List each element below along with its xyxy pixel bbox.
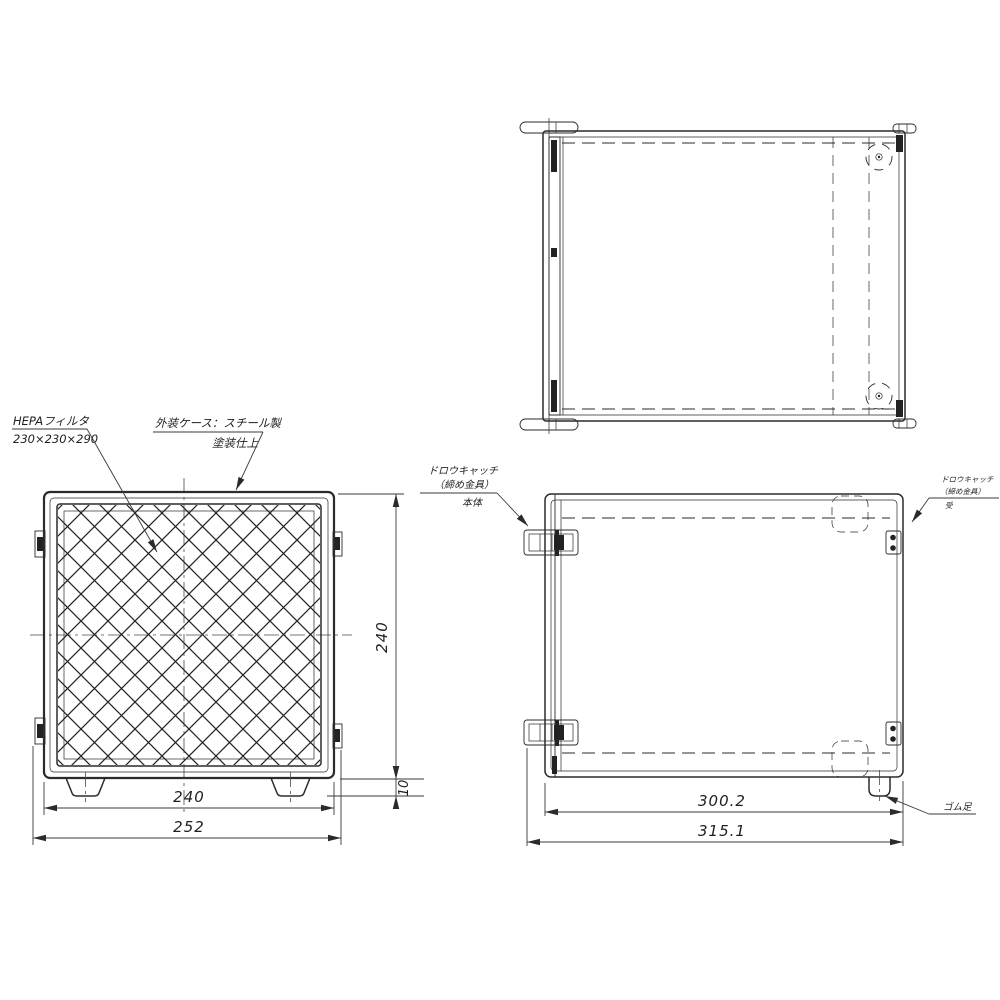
dim-foot-height: 10: [397, 780, 412, 797]
outer-case-finish: 塗装仕上: [212, 436, 258, 450]
technical-drawing: 240 252 240 10 300.2 315.1 HEPAフィルタ 230×…: [0, 0, 1000, 1000]
side-view: [524, 494, 903, 801]
draw-catch-body-line2: （締め金具）: [434, 479, 494, 491]
hidden-foot-mount-bottom: [832, 741, 868, 777]
draw-catch-body-line1: ドロウキャッチ: [428, 465, 499, 477]
hepa-filter-name: HEPAフィルタ: [13, 414, 89, 428]
filter-mesh: [58, 505, 320, 765]
draw-catch-receiver-line1: ドロウキャッチ: [941, 475, 994, 484]
catch-receiver-upper: [886, 531, 901, 554]
case-outline-side: [545, 494, 903, 777]
dim-front-body-width: 240: [173, 788, 205, 806]
label-draw-catch-body: ドロウキャッチ （締め金具） 本体: [420, 465, 528, 526]
case-outline-top: [543, 131, 905, 421]
front-view: [30, 478, 352, 812]
drawing-sheet: 240 252 240 10 300.2 315.1 HEPAフィルタ 230×…: [0, 0, 1000, 1000]
top-view: [520, 118, 916, 434]
label-outer-case: 外装ケース：スチール製 塗装仕上: [153, 416, 282, 490]
dim-front-overall-width: 252: [173, 818, 205, 836]
draw-catch-body-line3: 本体: [462, 497, 484, 509]
rubber-foot-text: ゴム足: [943, 801, 972, 813]
hidden-foot-mount-top: [832, 496, 868, 532]
leader-rubber-foot: [885, 796, 929, 814]
side-dimensions: 300.2 315.1: [527, 748, 903, 846]
catch-receiver-lower: [886, 722, 901, 745]
outer-case-name: 外装ケース：スチール製: [155, 416, 282, 430]
leader-draw-catch-body: [497, 493, 528, 526]
leader-draw-catch-receiver: [912, 498, 929, 522]
label-rubber-foot: ゴム足: [885, 796, 976, 814]
draw-catch-receiver-line2: （締め金具）: [940, 487, 985, 496]
foot-circle-top: [866, 144, 892, 170]
dim-side-body-depth: 300.2: [698, 792, 746, 810]
dim-front-body-height: 240: [373, 621, 391, 653]
foot-circle-bottom: [866, 383, 892, 409]
dim-side-overall-depth: 315.1: [698, 822, 746, 840]
hepa-filter-size: 230×230×290: [13, 432, 98, 446]
door-edge-strip: [549, 137, 560, 415]
label-draw-catch-receiver: ドロウキャッチ （締め金具） 受: [912, 475, 999, 522]
latch-handle-top: [520, 118, 578, 137]
latch-handle-bottom: [520, 415, 578, 434]
draw-catch-receiver-line3: 受: [945, 501, 954, 510]
